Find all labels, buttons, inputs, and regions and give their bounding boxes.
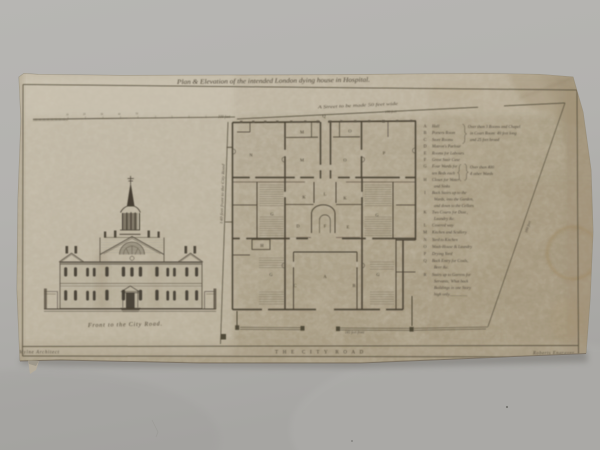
svg-text:C: C bbox=[294, 283, 297, 288]
svg-text:Over than 400: Over than 400 bbox=[470, 165, 495, 170]
svg-text:ten Beds each: ten Beds each bbox=[432, 170, 455, 175]
svg-text:Closet for Water: Closet for Water bbox=[432, 177, 460, 182]
svg-text:Drying Yard: Drying Yard bbox=[431, 251, 453, 256]
svg-text:and down to the Cellars: and down to the Cellars bbox=[434, 203, 474, 208]
svg-text:141 feet front: 141 feet front bbox=[345, 331, 365, 335]
svg-text:Laundry &c.: Laundry &c. bbox=[433, 216, 455, 221]
svg-text:Hall: Hall bbox=[431, 124, 440, 129]
svg-text:O: O bbox=[348, 129, 351, 134]
svg-text:4 other Wards: 4 other Wards bbox=[470, 171, 494, 176]
svg-text:Matron's Parlour: Matron's Parlour bbox=[431, 144, 461, 149]
svg-text:100 feet: 100 feet bbox=[218, 115, 231, 119]
svg-text:and 25 feet broad: and 25 feet broad bbox=[470, 137, 500, 142]
svg-text:L: L bbox=[424, 223, 427, 228]
svg-text:Beer &c.: Beer &c. bbox=[434, 265, 449, 270]
svg-text:Wash-House & Laundry: Wash-House & Laundry bbox=[432, 244, 472, 249]
svg-text:Porters Room: Porters Room bbox=[431, 130, 455, 135]
svg-text:and Sinks: and Sinks bbox=[434, 184, 450, 189]
svg-text:Yard to Kitchen: Yard to Kitchen bbox=[432, 237, 458, 242]
svg-text:O: O bbox=[423, 244, 426, 249]
svg-text:B: B bbox=[353, 283, 356, 288]
svg-text:high only.________: high only.________ bbox=[434, 291, 468, 296]
svg-text:B: B bbox=[424, 130, 427, 135]
svg-text:D: D bbox=[296, 224, 299, 229]
svg-text:D: D bbox=[423, 144, 426, 149]
svg-text:M: M bbox=[423, 230, 427, 235]
svg-text:H: H bbox=[423, 177, 426, 182]
svg-text:N: N bbox=[423, 237, 426, 242]
svg-text:Over than 3 Rooms and Chapel: Over than 3 Rooms and Chapel bbox=[468, 124, 521, 129]
svg-text:M: M bbox=[300, 158, 304, 163]
svg-text:Stairs up to Garrets for: Stairs up to Garrets for bbox=[432, 272, 471, 277]
svg-text:R: R bbox=[424, 272, 427, 277]
svg-text:Rooms for Labours: Rooms for Labours bbox=[431, 150, 464, 155]
svg-text:C: C bbox=[424, 137, 427, 142]
svg-text:L: L bbox=[324, 192, 327, 197]
svg-text:Great Stair Case: Great Stair Case bbox=[432, 157, 460, 162]
svg-text:E: E bbox=[424, 150, 427, 155]
svg-text:O: O bbox=[343, 158, 346, 163]
svg-text:Back Stairs up to the: Back Stairs up to the bbox=[432, 190, 467, 195]
svg-text:E: E bbox=[347, 225, 350, 230]
svg-text:M: M bbox=[300, 130, 304, 135]
svg-text:Kitchen and Scullery: Kitchen and Scullery bbox=[431, 230, 467, 235]
svg-text:in Court Room: 40 feet long: in Court Room: 40 feet long bbox=[470, 131, 517, 136]
svg-text:Buildings in one Story: Buildings in one Story bbox=[434, 285, 471, 290]
svg-text:G: G bbox=[423, 164, 426, 169]
svg-text:Four Wards for: Four Wards for bbox=[431, 164, 458, 169]
svg-text:Mylne Architect: Mylne Architect bbox=[18, 351, 60, 356]
svg-text:Servants; What back: Servants; What back bbox=[434, 278, 468, 283]
svg-text:Store Rooms: Store Rooms bbox=[432, 137, 453, 142]
svg-text:T H E C I T Y R O A D: T H E C I T Y R O A D bbox=[275, 350, 365, 356]
svg-text:Covered way: Covered way bbox=[432, 223, 454, 228]
